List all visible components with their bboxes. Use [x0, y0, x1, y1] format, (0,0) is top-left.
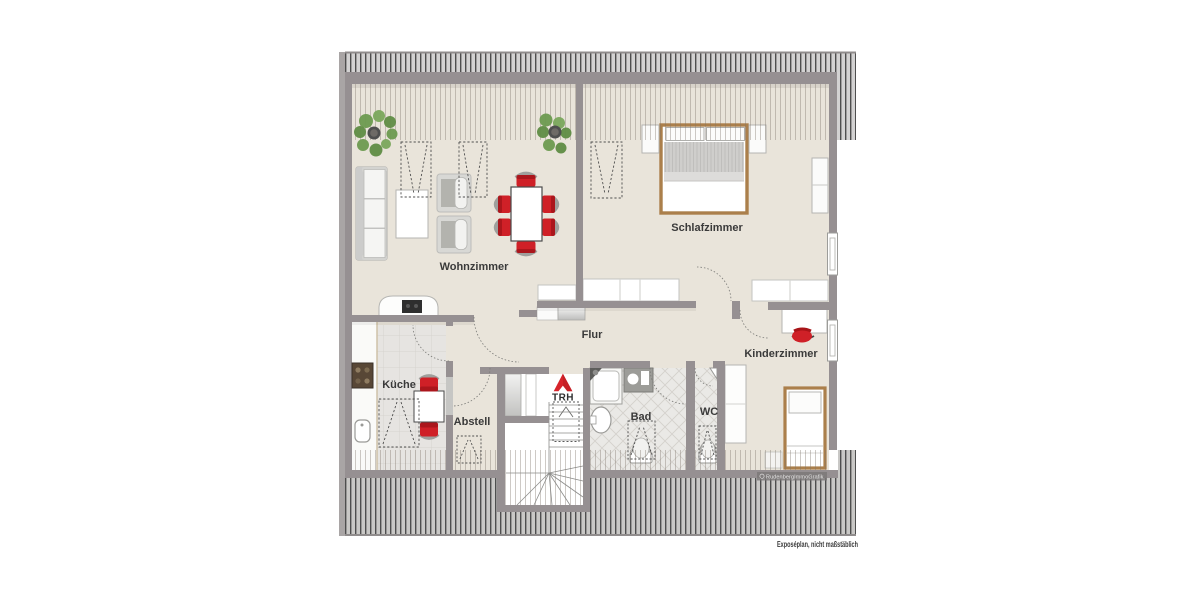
svg-text:Wohnzimmer: Wohnzimmer — [440, 261, 510, 273]
svg-text:Bad: Bad — [631, 411, 652, 423]
svg-text:Flur: Flur — [582, 329, 603, 341]
svg-text:Exposéplan, nicht maßstäblich: Exposéplan, nicht maßstäblich — [777, 539, 858, 549]
svg-text:WC: WC — [700, 406, 718, 418]
svg-text:Schlafzimmer: Schlafzimmer — [671, 222, 743, 234]
svg-text:TRH: TRH — [552, 393, 574, 404]
svg-text:Kinderzimmer: Kinderzimmer — [744, 348, 818, 360]
svg-text:Küche: Küche — [382, 379, 416, 391]
svg-text:Abstell: Abstell — [454, 416, 491, 428]
svg-text:RudenbergImmoGrafik: RudenbergImmoGrafik — [766, 474, 824, 480]
